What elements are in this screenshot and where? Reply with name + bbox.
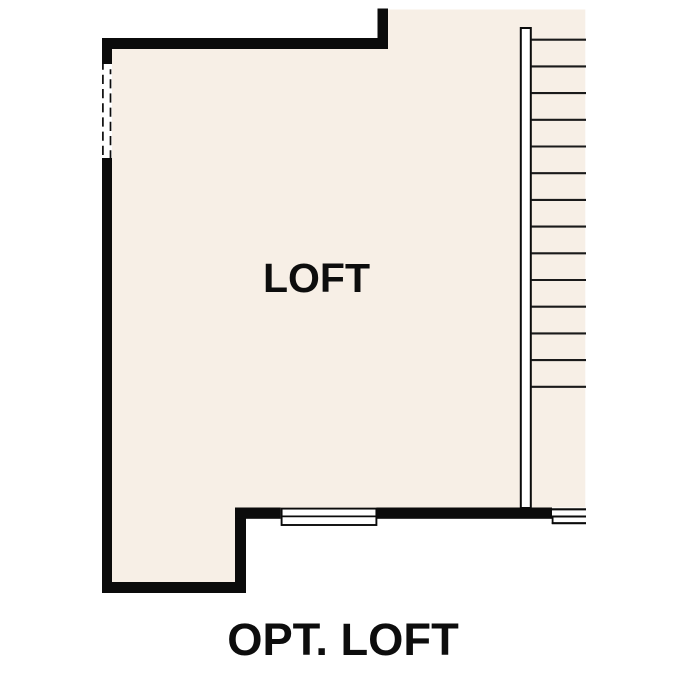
svg-text:LOFT: LOFT [263,255,370,301]
svg-text:OPT. LOFT: OPT. LOFT [227,614,459,665]
